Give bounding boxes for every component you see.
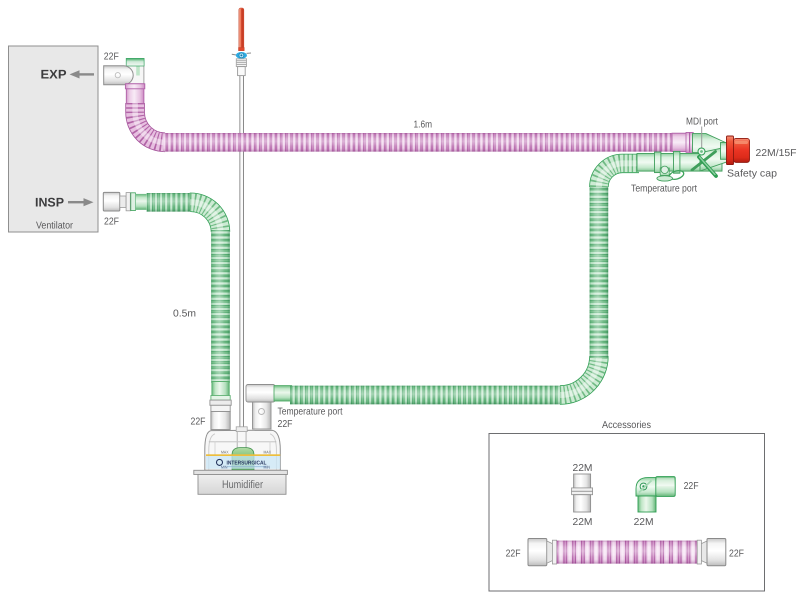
svg-text:0.5m: 0.5m: [173, 309, 196, 320]
svg-text:MAX: MAX: [264, 449, 272, 454]
svg-text:EXP: EXP: [41, 68, 67, 82]
svg-text:Safety cap: Safety cap: [727, 169, 777, 180]
svg-text:Temperature port: Temperature port: [631, 184, 697, 195]
svg-text:Accessories: Accessories: [602, 420, 651, 431]
svg-text:INSP: INSP: [35, 196, 64, 210]
svg-text:INTERSURGICAL: INTERSURGICAL: [227, 460, 268, 466]
svg-text:22F: 22F: [104, 52, 119, 63]
svg-text:MAX: MAX: [221, 449, 229, 454]
svg-text:22M: 22M: [573, 463, 593, 474]
svg-text:22F: 22F: [278, 419, 293, 430]
svg-text:MIN: MIN: [264, 464, 271, 469]
svg-text:22F: 22F: [191, 417, 206, 428]
svg-text:Humidifier: Humidifier: [222, 479, 263, 491]
svg-text:1.6m: 1.6m: [414, 120, 433, 131]
svg-text:22M: 22M: [573, 517, 593, 528]
svg-text:22M: 22M: [634, 517, 654, 528]
svg-text:22F: 22F: [684, 481, 699, 492]
svg-text:22F: 22F: [104, 217, 119, 228]
svg-text:22F: 22F: [506, 549, 521, 560]
svg-text:Temperature port: Temperature port: [278, 407, 343, 418]
svg-text:MIN: MIN: [221, 464, 228, 469]
svg-text:MDI port: MDI port: [686, 116, 718, 127]
svg-text:22F: 22F: [729, 549, 744, 560]
svg-text:Ventilator: Ventilator: [36, 221, 74, 232]
svg-text:22M/15F: 22M/15F: [756, 148, 797, 159]
